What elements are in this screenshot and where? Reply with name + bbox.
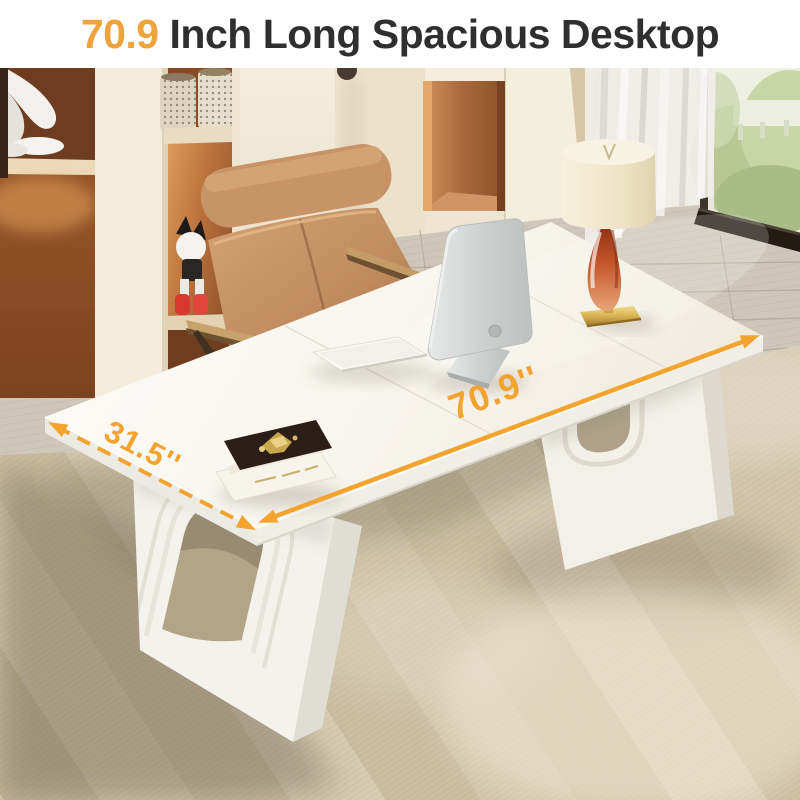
office-photo: 70.9'' 31.5'' — [0, 68, 800, 800]
page-title: 70.9 Inch Long Spacious Desktop — [81, 11, 719, 58]
wall-niche — [423, 81, 505, 211]
product-image: 70.9 Inch Long Spacious Desktop — [0, 0, 800, 800]
title-rest: Inch Long Spacious Desktop — [159, 11, 720, 57]
lamp-shade — [562, 139, 656, 229]
title-banner: 70.9 Inch Long Spacious Desktop — [0, 0, 800, 68]
bookshelf-pillar — [95, 68, 168, 398]
title-highlight: 70.9 — [81, 11, 159, 57]
monitor-logo — [489, 325, 501, 337]
